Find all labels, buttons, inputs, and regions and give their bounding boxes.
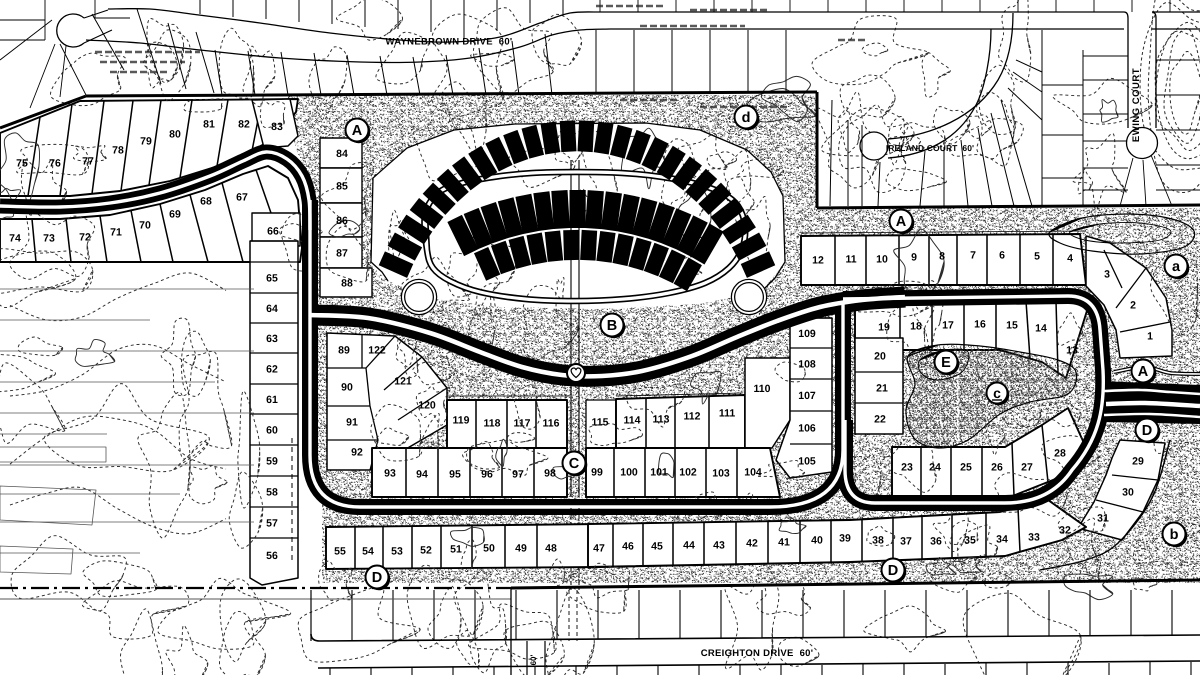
svg-text:53: 53: [391, 546, 403, 558]
svg-text:11: 11: [845, 254, 856, 266]
svg-text:7: 7: [970, 250, 976, 262]
svg-text:48: 48: [545, 543, 557, 555]
svg-text:C: C: [569, 456, 580, 472]
svg-text:117: 117: [514, 418, 531, 430]
svg-text:5: 5: [1034, 251, 1040, 263]
svg-text:110: 110: [754, 383, 771, 395]
svg-text:20: 20: [874, 351, 886, 363]
svg-text:44: 44: [683, 540, 695, 552]
svg-text:91: 91: [346, 417, 358, 429]
svg-text:2: 2: [1130, 300, 1136, 312]
svg-text:93: 93: [384, 468, 396, 480]
svg-text:27: 27: [1021, 462, 1033, 474]
svg-text:88: 88: [341, 278, 353, 290]
svg-text:36: 36: [930, 536, 942, 548]
svg-text:15: 15: [1006, 320, 1018, 332]
svg-text:39: 39: [839, 533, 851, 545]
svg-text:92: 92: [351, 447, 363, 459]
svg-text:64: 64: [266, 303, 278, 315]
svg-text:76: 76: [49, 158, 61, 170]
svg-text:101: 101: [650, 467, 668, 479]
svg-text:107: 107: [798, 390, 816, 402]
svg-text:14: 14: [1035, 323, 1047, 335]
svg-text:50: 50: [483, 543, 495, 555]
svg-text:60: 60: [266, 425, 278, 437]
svg-text:3: 3: [1104, 269, 1110, 281]
svg-text:102: 102: [679, 467, 697, 479]
svg-text:113: 113: [653, 414, 670, 426]
svg-text:21: 21: [876, 383, 888, 395]
svg-text:19: 19: [878, 322, 890, 334]
svg-text:29: 29: [1132, 456, 1144, 468]
svg-text:b: b: [1170, 527, 1179, 543]
svg-text:IRELAND COURT 60': IRELAND COURT 60': [886, 143, 974, 153]
svg-text:17: 17: [942, 320, 954, 332]
svg-text:c: c: [993, 385, 1001, 401]
svg-text:79: 79: [140, 136, 152, 148]
svg-text:83: 83: [271, 121, 283, 133]
svg-text:120: 120: [418, 400, 436, 412]
svg-text:42: 42: [746, 538, 758, 550]
svg-text:82: 82: [238, 119, 250, 131]
svg-text:100: 100: [620, 467, 638, 479]
svg-text:52: 52: [420, 545, 432, 557]
svg-text:46: 46: [622, 541, 634, 553]
svg-text:28: 28: [1054, 448, 1066, 460]
svg-text:EWING COURT: EWING COURT: [1131, 68, 1142, 142]
svg-text:B: B: [607, 318, 617, 334]
svg-text:67: 67: [236, 192, 248, 204]
svg-text:87: 87: [336, 248, 348, 260]
svg-text:12: 12: [812, 255, 824, 267]
svg-text:81: 81: [203, 119, 215, 131]
svg-text:22: 22: [874, 414, 886, 426]
svg-text:119: 119: [453, 415, 470, 427]
svg-text:47: 47: [593, 543, 605, 555]
svg-text:D: D: [372, 570, 382, 586]
svg-text:90: 90: [341, 382, 353, 394]
svg-text:54: 54: [362, 546, 374, 558]
svg-text:58: 58: [266, 487, 278, 499]
svg-text:61: 61: [266, 394, 278, 406]
svg-text:49: 49: [515, 543, 527, 555]
svg-text:71: 71: [110, 227, 122, 239]
svg-text:E: E: [941, 355, 951, 371]
svg-text:104: 104: [744, 467, 762, 479]
svg-text:59: 59: [266, 456, 278, 468]
svg-text:26: 26: [991, 462, 1003, 474]
svg-text:78: 78: [112, 145, 124, 157]
svg-text:89: 89: [338, 345, 350, 357]
svg-text:57: 57: [266, 518, 278, 530]
svg-text:45: 45: [651, 541, 663, 553]
svg-text:24: 24: [929, 462, 941, 474]
svg-text:23: 23: [901, 462, 913, 474]
svg-text:98: 98: [544, 468, 556, 480]
svg-text:80: 80: [169, 129, 181, 141]
svg-text:33: 33: [1028, 532, 1040, 544]
svg-text:65: 65: [266, 273, 278, 285]
svg-text:103: 103: [712, 468, 730, 480]
svg-text:84: 84: [336, 148, 348, 160]
svg-text:18: 18: [910, 321, 922, 333]
svg-text:40: 40: [811, 535, 823, 547]
svg-text:CREIGHTON DRIVE 60': CREIGHTON DRIVE 60': [701, 648, 814, 659]
svg-text:106: 106: [798, 423, 816, 435]
svg-text:85: 85: [336, 181, 348, 193]
svg-text:9: 9: [911, 252, 917, 264]
svg-text:A: A: [352, 123, 363, 139]
svg-text:86: 86: [336, 215, 348, 227]
svg-text:10: 10: [876, 254, 888, 266]
svg-text:112: 112: [684, 411, 701, 423]
svg-text:63: 63: [266, 333, 278, 345]
svg-text:111: 111: [719, 408, 736, 420]
svg-text:73: 73: [43, 233, 55, 245]
svg-text:30: 30: [1122, 487, 1134, 499]
svg-text:105: 105: [798, 456, 816, 468]
svg-text:122: 122: [368, 345, 386, 357]
svg-text:38: 38: [872, 535, 884, 547]
svg-text:35: 35: [964, 535, 976, 547]
svg-text:68: 68: [200, 196, 212, 208]
svg-text:WAYNEBROWN DRIVE 60': WAYNEBROWN DRIVE 60': [386, 37, 513, 48]
svg-text:69: 69: [169, 209, 181, 221]
svg-text:43: 43: [713, 540, 725, 552]
svg-text:95: 95: [449, 469, 461, 481]
svg-text:115: 115: [592, 417, 609, 429]
svg-text:32: 32: [1059, 525, 1071, 537]
svg-text:16: 16: [974, 319, 986, 331]
svg-text:77: 77: [82, 156, 94, 168]
svg-text:13: 13: [1066, 345, 1078, 357]
svg-text:114: 114: [624, 415, 641, 427]
svg-text:A: A: [1138, 364, 1149, 380]
svg-text:72: 72: [79, 232, 91, 244]
svg-text:D: D: [888, 563, 898, 579]
svg-text:109: 109: [798, 328, 816, 340]
svg-text:116: 116: [543, 418, 560, 430]
svg-text:31: 31: [1097, 513, 1109, 525]
svg-text:41: 41: [778, 537, 790, 549]
svg-text:96: 96: [481, 469, 493, 481]
svg-text:60': 60': [529, 655, 538, 666]
svg-text:4: 4: [1067, 253, 1073, 265]
svg-text:118: 118: [484, 418, 501, 430]
svg-text:66: 66: [267, 226, 279, 238]
svg-text:99: 99: [591, 467, 603, 479]
svg-text:74: 74: [9, 233, 21, 245]
svg-text:25: 25: [960, 462, 972, 474]
svg-text:56: 56: [266, 550, 278, 562]
svg-text:108: 108: [798, 359, 816, 371]
svg-text:94: 94: [416, 469, 428, 481]
svg-text:62: 62: [266, 364, 278, 376]
svg-text:d: d: [742, 110, 751, 126]
svg-text:55: 55: [334, 546, 346, 558]
svg-text:D: D: [1142, 423, 1152, 439]
svg-text:34: 34: [996, 534, 1008, 546]
svg-text:a: a: [1172, 259, 1181, 275]
svg-text:1: 1: [1147, 331, 1153, 343]
svg-text:51: 51: [450, 544, 462, 556]
svg-text:6: 6: [999, 250, 1005, 262]
svg-text:37: 37: [900, 536, 912, 548]
svg-text:8: 8: [939, 251, 945, 263]
svg-text:A: A: [896, 214, 907, 230]
svg-text:97: 97: [512, 469, 524, 481]
svg-text:121: 121: [394, 376, 412, 388]
svg-text:70: 70: [139, 220, 151, 232]
svg-text:75: 75: [16, 158, 28, 170]
